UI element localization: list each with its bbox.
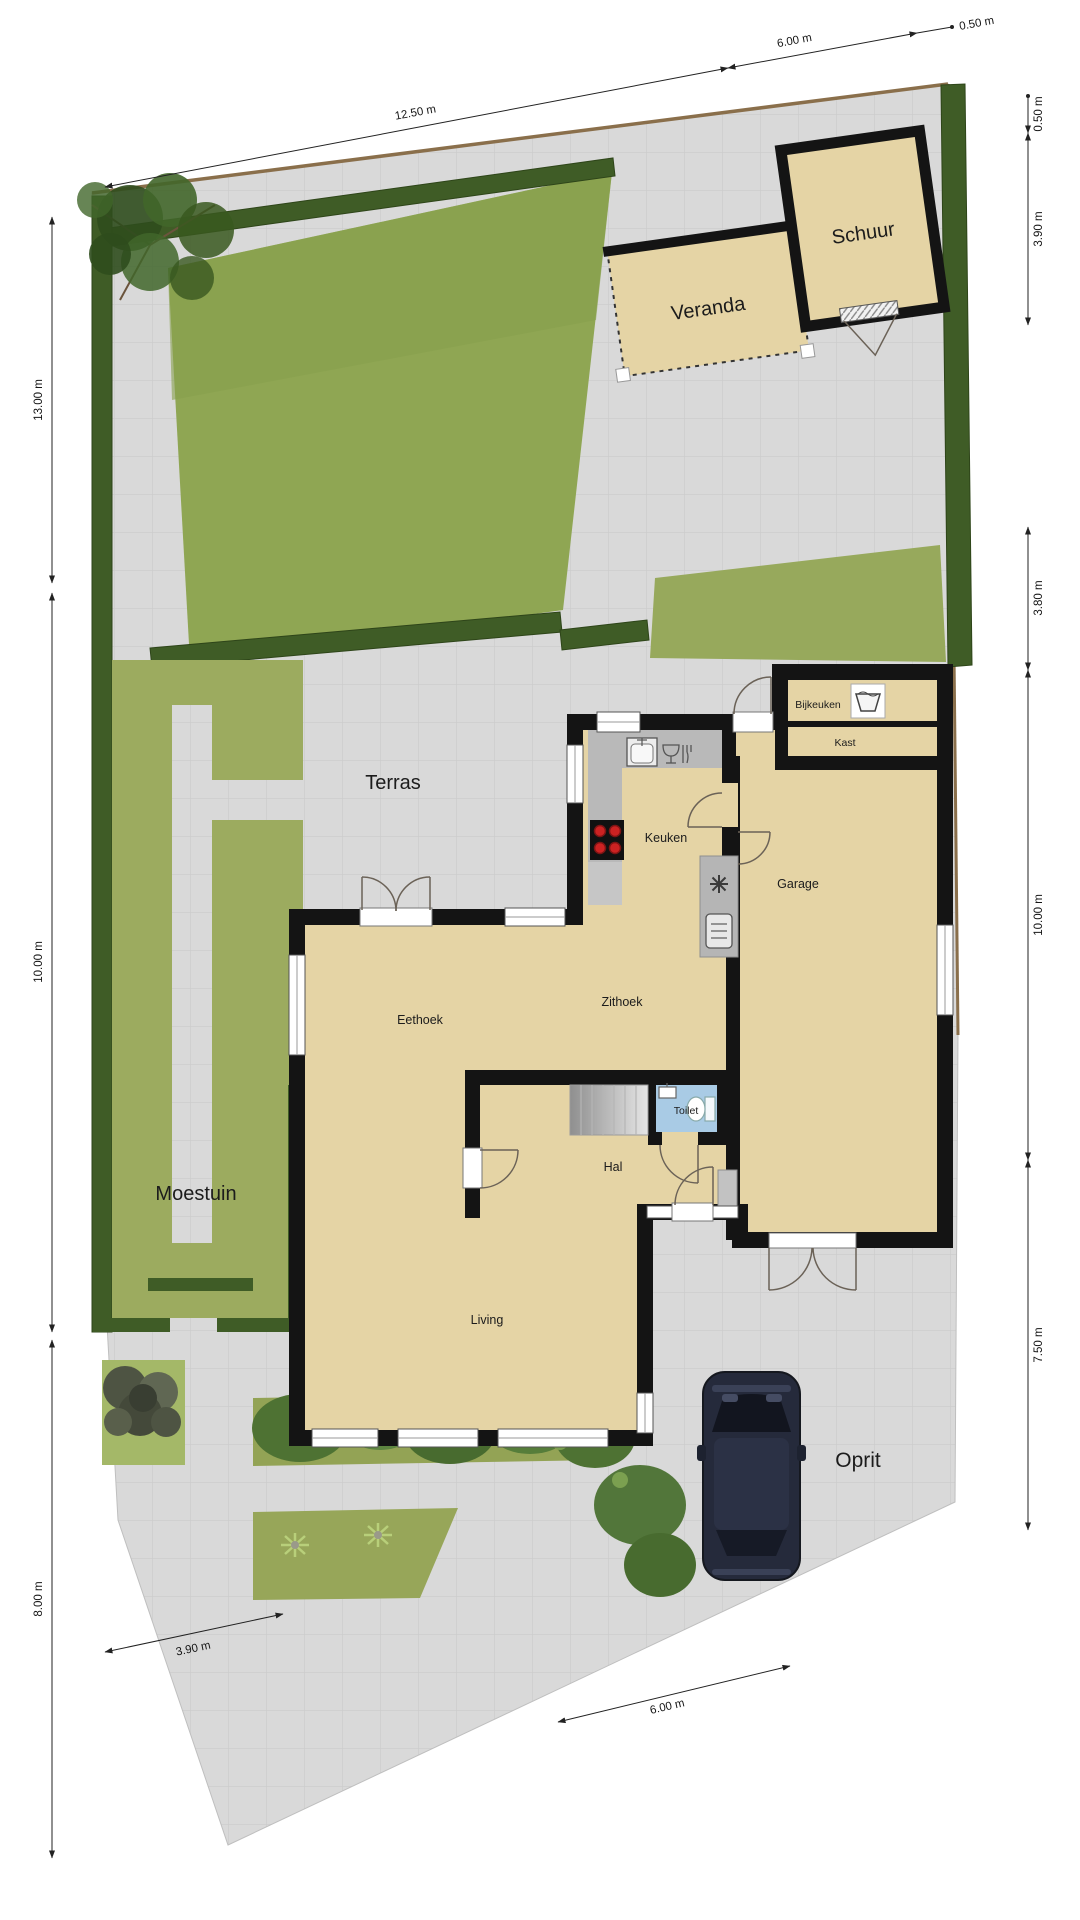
room-label-eethoek: Eethoek	[397, 1013, 444, 1027]
dim-right-5: 7.50 m	[1033, 1327, 1045, 1362]
sink-icon	[627, 738, 657, 766]
veranda-post	[616, 368, 631, 383]
stairs	[570, 1085, 648, 1135]
room-label-hal: Hal	[604, 1160, 623, 1174]
hedge-moestuin-south1	[93, 1318, 170, 1332]
hedge-moestuin-inner	[148, 1278, 253, 1291]
area-label-moestuin: Moestuin	[155, 1183, 236, 1205]
moestuin-path-stub	[212, 780, 303, 820]
room-label-keuken: Keuken	[645, 831, 687, 845]
stove-icon	[590, 820, 624, 860]
dim-top-right: 0.50 m	[958, 15, 995, 33]
moestuin-path	[172, 705, 212, 1243]
room-label-garage: Garage	[777, 877, 819, 891]
dim-right-4: 10.00 m	[1033, 894, 1045, 936]
dim-left-3: 8.00 m	[33, 1581, 45, 1616]
washtub-icon	[851, 684, 885, 718]
dim-right-3: 3.80 m	[1033, 580, 1045, 615]
room-label-zithoek: Zithoek	[602, 995, 644, 1009]
hedge-west	[92, 196, 112, 1332]
room-label-bijkeuken: Bijkeuken	[795, 699, 841, 711]
dim-right-1: 0.50 m	[1033, 96, 1045, 131]
dark-tree	[103, 1366, 181, 1437]
room-label-kast: Kast	[834, 737, 855, 749]
dim-bottom-right: 6.00 m	[649, 1697, 686, 1717]
car	[697, 1372, 806, 1580]
hedge-moestuin-south2	[217, 1318, 293, 1332]
dim-left-1: 13.00 m	[33, 379, 45, 421]
kitchen-floor-strip	[588, 862, 622, 905]
small-plant-1	[281, 1533, 309, 1557]
room-label-toilet: Toilet	[674, 1105, 699, 1117]
entrance-cupboard	[718, 1170, 737, 1206]
boiler-icon	[706, 914, 732, 948]
small-plant-2	[364, 1523, 392, 1547]
fan-icon	[710, 875, 728, 893]
area-label-terras: Terras	[365, 772, 421, 794]
dim-top-mid: 6.00 m	[776, 32, 813, 50]
dim-right-2: 3.90 m	[1033, 211, 1045, 246]
dim-top-left: 12.50 m	[394, 103, 437, 122]
dim-left-2: 10.00 m	[33, 941, 45, 983]
veranda-post	[800, 344, 815, 359]
room-label-living: Living	[471, 1313, 504, 1327]
site-plan: Veranda Schuur	[0, 0, 1080, 1920]
area-label-oprit: Oprit	[835, 1449, 881, 1472]
